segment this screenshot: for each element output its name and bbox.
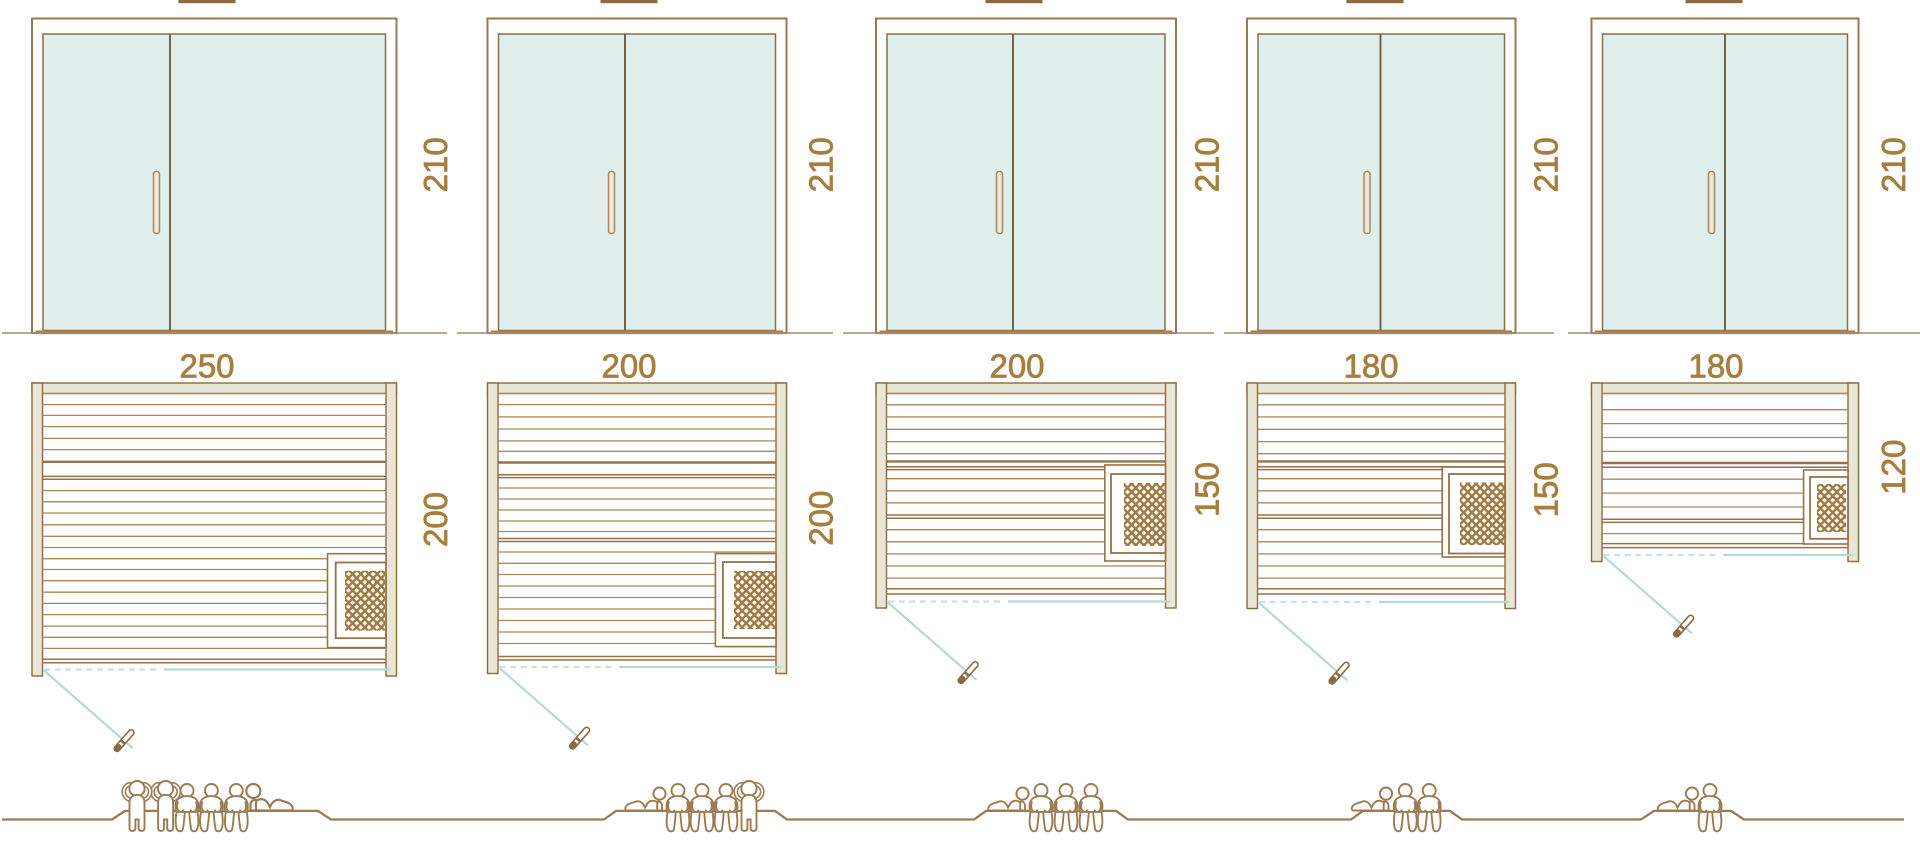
svg-text:180: 180 [1343,348,1398,385]
svg-text:200: 200 [989,348,1044,385]
svg-text:120: 120 [1875,440,1912,495]
svg-text:210: 210 [1875,137,1912,192]
svg-text:210: 210 [1189,137,1226,192]
svg-text:210: 210 [803,137,840,192]
svg-text:210: 210 [417,137,454,192]
svg-text:200: 200 [803,491,840,546]
svg-text:250: 250 [179,348,234,385]
svg-text:200: 200 [601,348,656,385]
svg-text:200: 200 [417,492,454,547]
svg-text:210: 210 [1528,137,1565,192]
svg-text:180: 180 [1688,348,1743,385]
svg-text:150: 150 [1528,462,1565,517]
svg-text:150: 150 [1189,462,1226,517]
